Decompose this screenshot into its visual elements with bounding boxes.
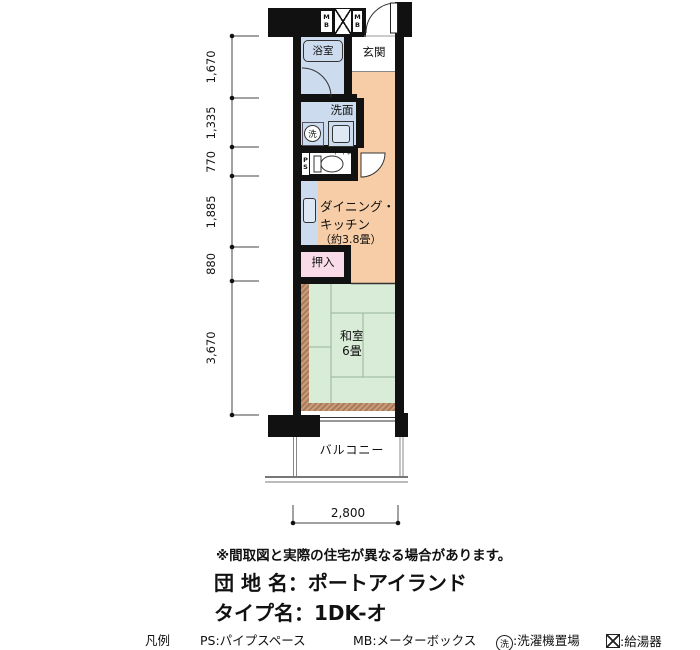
balcony-railing (265, 477, 408, 482)
legend-washer: 洗:洗濯機置場 (496, 630, 580, 650)
water-heater-box-icon (334, 8, 352, 35)
type-name: タイプ名：1DK-オ (214, 597, 387, 626)
wall-bath-entrance (344, 37, 352, 98)
meter-box-left: MB (320, 10, 333, 33)
dk-label-line3: （約3.8畳） (320, 233, 390, 246)
wall-top-left (268, 8, 322, 37)
dim-left-3670: 3,670 (205, 318, 219, 378)
pipe-space-label: PS (302, 157, 309, 171)
dim-left-880: 880 (205, 234, 219, 294)
entrance-door-arc (366, 3, 396, 33)
legend-washer-symbol: 洗 (500, 637, 509, 650)
dim-left-1885: 1,885 (205, 182, 219, 242)
toilet-label: トイレ (331, 149, 355, 157)
dk-label-line1: ダイニング・ (320, 199, 396, 214)
washstand-bowl (332, 125, 350, 143)
japanese-room-label-line2: 6畳 (329, 344, 375, 358)
wall-closet-bottom (293, 277, 351, 284)
meter-box-left-label: MB (323, 14, 331, 28)
pipe-space-box: PS (301, 152, 310, 176)
estate-name: 団 地 名：ポートアイランド (214, 567, 467, 596)
closet-label: 押入 (306, 256, 340, 270)
kitchen-sink (303, 198, 316, 223)
legend-heater: :給湯器 (606, 631, 662, 650)
floorplan-page: MB MB PS 浴室 洗 玄関 洗面 トイレ ダイニング・ キッチン （約3.… (0, 0, 700, 650)
washing-machine-icon: 洗 (304, 125, 321, 142)
entrance-label: 玄関 (354, 46, 394, 60)
meter-box-right-label: MB (354, 14, 362, 28)
water-heater-icon (606, 634, 620, 648)
legend-ps: PS:パイプスペース (200, 630, 306, 649)
wall-bottom-right (395, 413, 408, 437)
disclaimer-note: ※間取図と実際の住宅が異なる場合があります。 (216, 544, 511, 564)
bathtub: 浴室 (303, 40, 343, 62)
wall-right (395, 2, 404, 420)
bath-label: 浴室 (313, 45, 334, 58)
legend-title: 凡例 (145, 630, 170, 649)
engawa-strip-bottom (301, 403, 395, 411)
left-dimension-ticks (230, 34, 235, 418)
washer-symbol: 洗 (308, 128, 317, 140)
legend-washer-label: :洗濯機置場 (513, 633, 580, 648)
balcony-label: バルコニー (313, 443, 391, 457)
japanese-room-label-line1: 和室 (329, 329, 375, 343)
wall-bottom-left (268, 415, 320, 437)
legend-heater-label: :給湯器 (620, 634, 662, 649)
wall-bath-bottom (293, 94, 357, 102)
washroom-label: 洗面 (324, 104, 360, 118)
left-dimension-line (232, 36, 259, 415)
washer-circle-icon: 洗 (496, 635, 513, 650)
dk-label-line2: キッチン (320, 217, 382, 232)
legend-mb: MB:メーターボックス (353, 630, 476, 649)
meter-box-right: MB (352, 10, 363, 33)
balcony-window-lines (320, 418, 395, 422)
washstand (328, 121, 354, 147)
dim-bottom-2800: 2,800 (305, 506, 391, 520)
engawa-strip-left (301, 284, 309, 411)
dim-left-1670: 1,670 (205, 37, 219, 97)
bottom-dimension-ticks (291, 521, 401, 526)
